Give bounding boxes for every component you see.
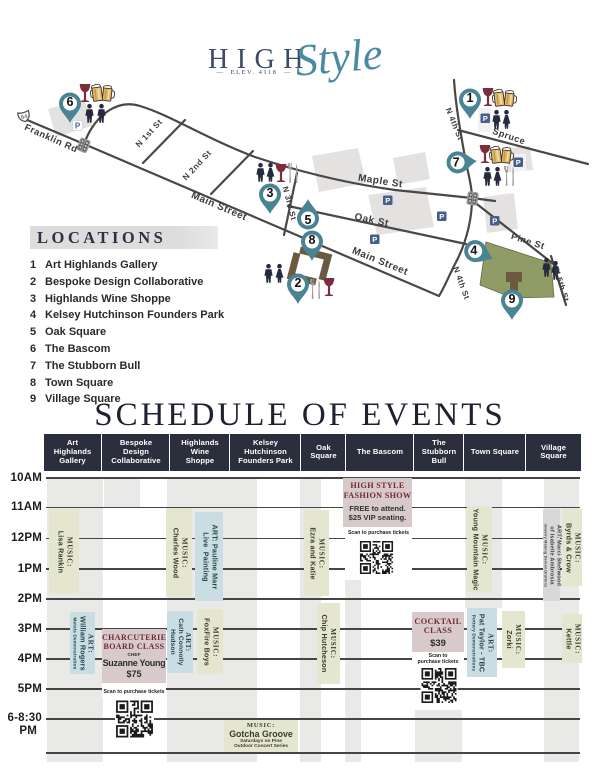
- svg-text:2: 2: [295, 276, 302, 290]
- svg-text:N 4th St: N 4th St: [451, 266, 471, 301]
- svg-text:8: 8: [309, 233, 316, 247]
- svg-text:4: 4: [470, 244, 477, 258]
- svg-text:N 1st St: N 1st St: [133, 117, 164, 149]
- svg-text:Pine St: Pine St: [510, 231, 546, 251]
- svg-text:N 5th St: N 5th St: [552, 268, 571, 303]
- svg-text:1: 1: [467, 91, 474, 105]
- svg-text:Main Street: Main Street: [189, 190, 248, 223]
- svg-text:9: 9: [509, 292, 516, 306]
- svg-text:N 4th St: N 4th St: [444, 107, 465, 142]
- svg-text:N 2nd St: N 2nd St: [180, 148, 213, 182]
- svg-text:6: 6: [67, 95, 74, 109]
- svg-text:P: P: [75, 122, 81, 131]
- svg-text:N 3rd St: N 3rd St: [281, 185, 299, 221]
- svg-text:7: 7: [453, 156, 460, 170]
- svg-text:5: 5: [305, 213, 312, 227]
- svg-text:3: 3: [267, 186, 274, 200]
